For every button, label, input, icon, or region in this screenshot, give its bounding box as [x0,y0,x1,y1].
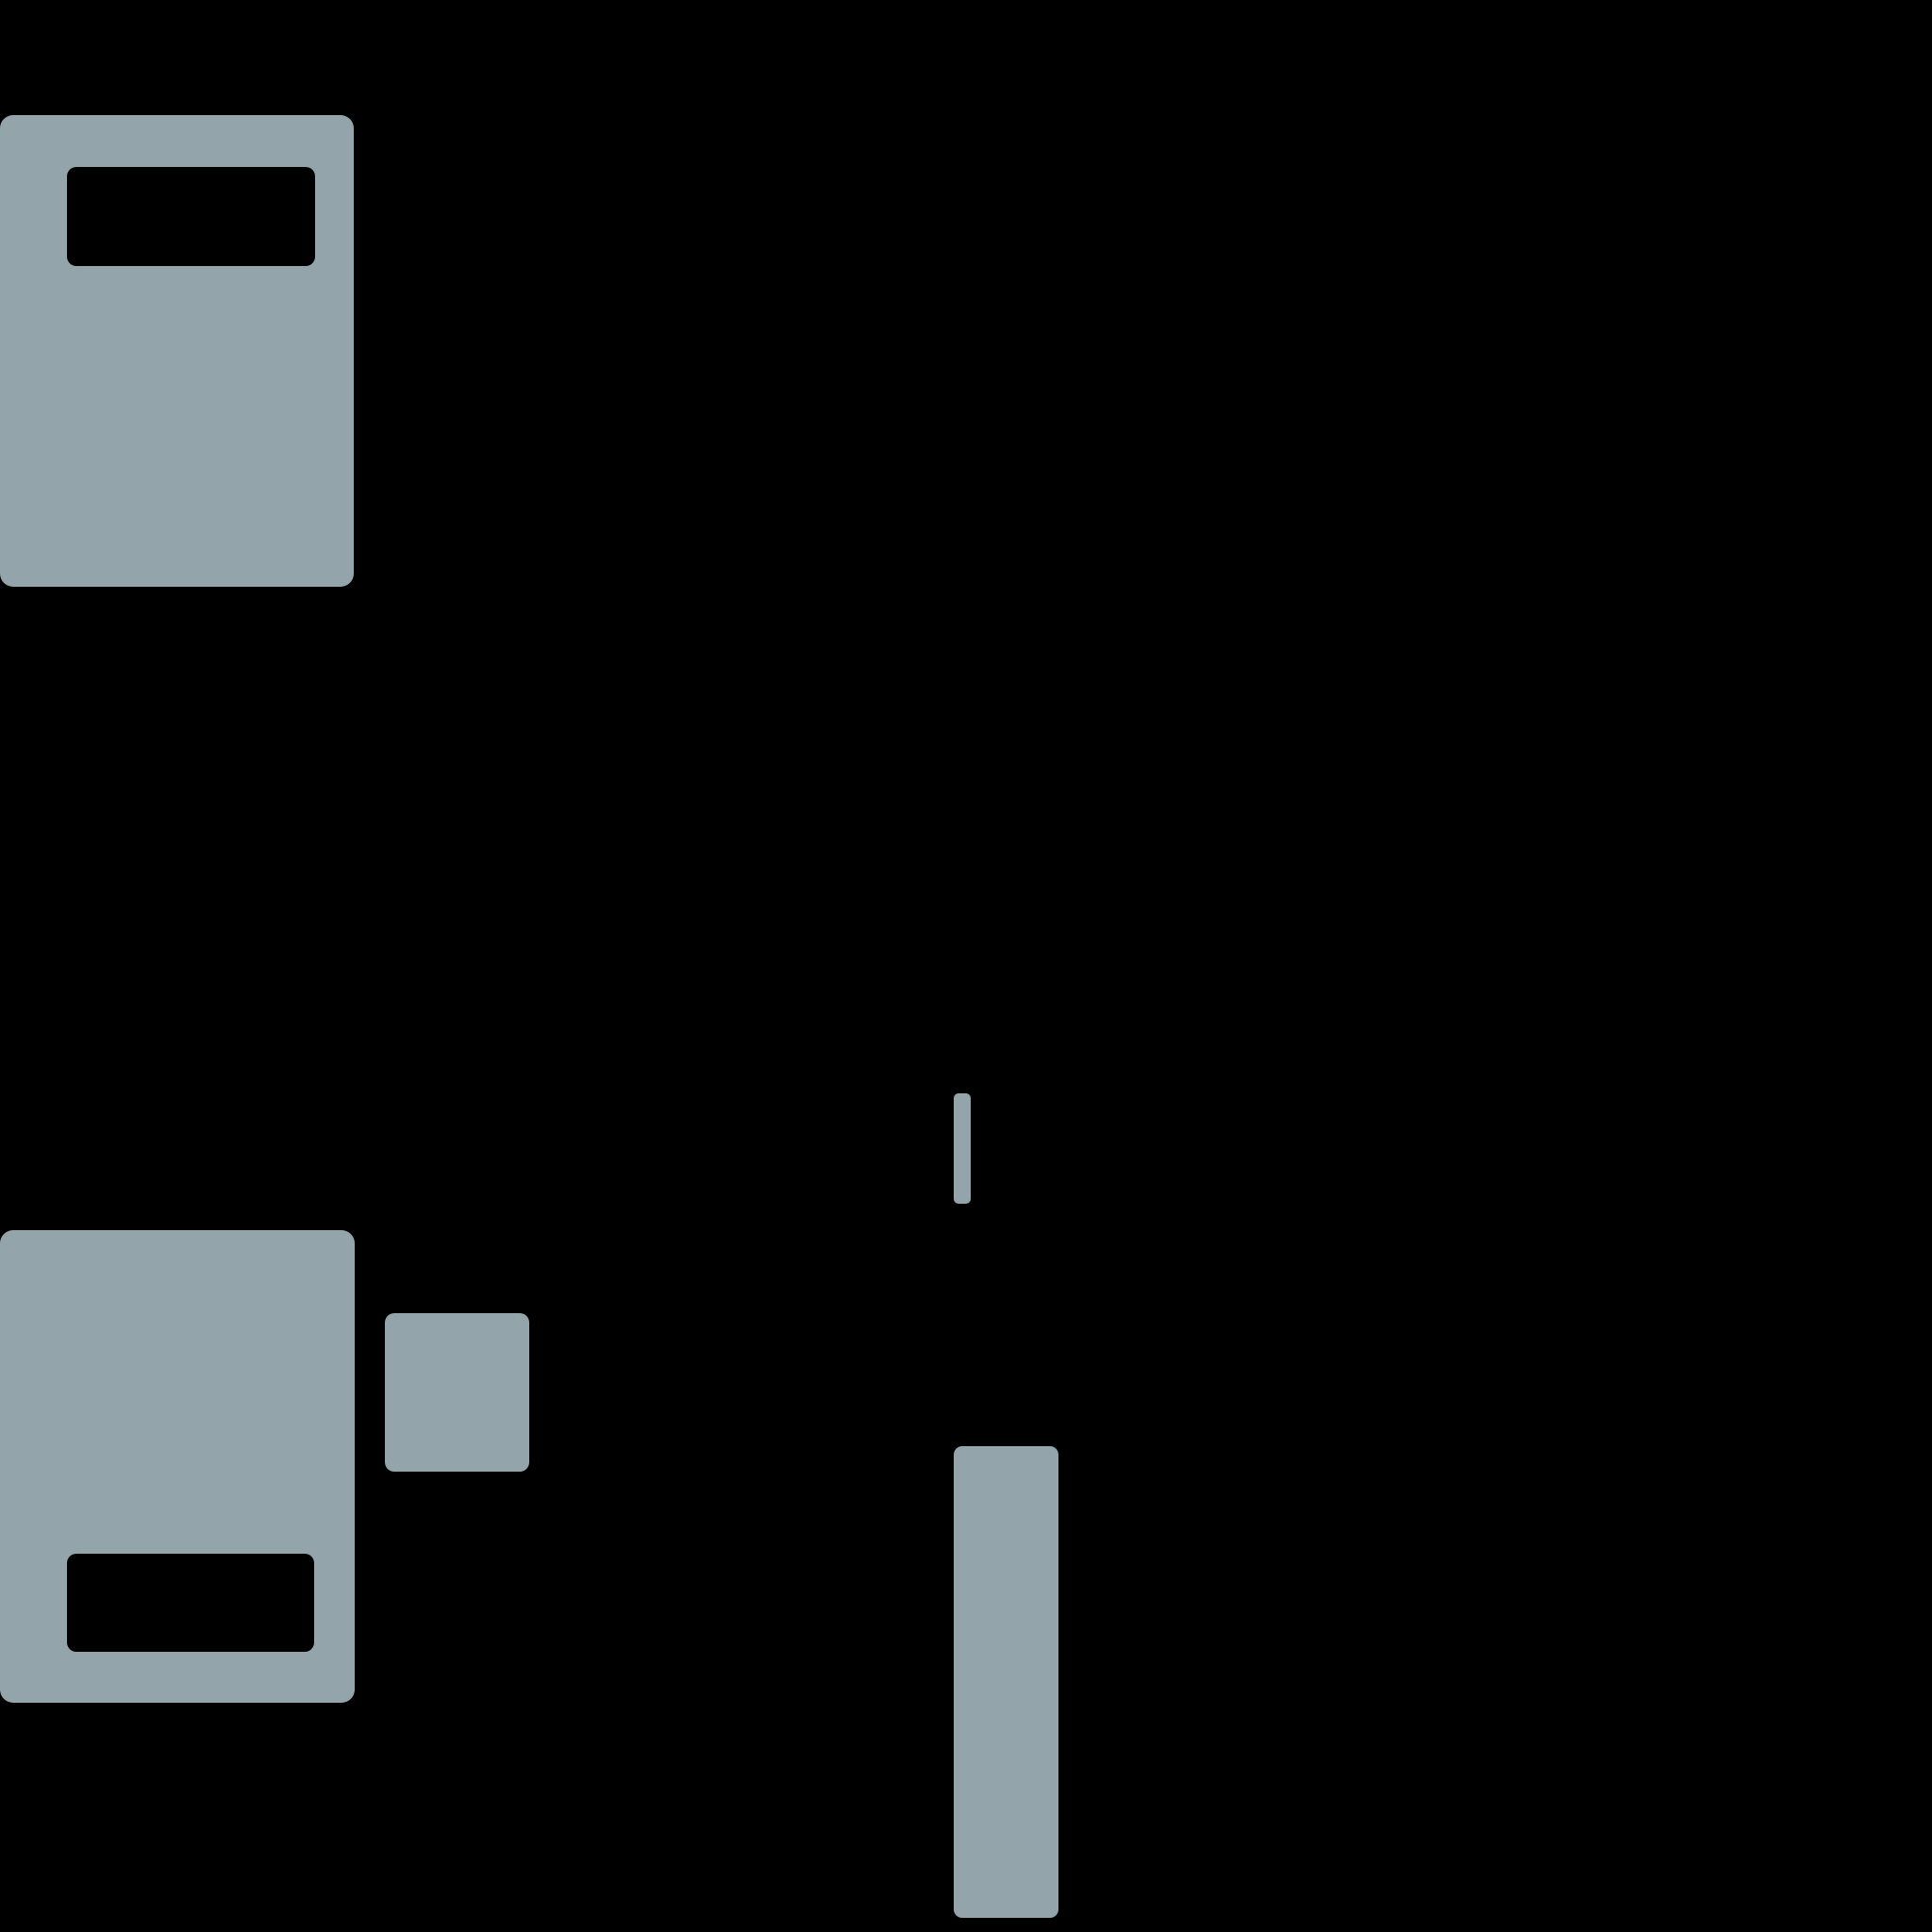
panel-bottom-left-cutout [67,1554,314,1652]
panel-top-left-cutout [67,167,315,266]
tall-vertical-bar[interactable] [954,1446,1058,1918]
thin-vertical-bar[interactable] [954,1093,971,1204]
dark-canvas [0,0,1932,1932]
shapes-layer [0,0,1932,1932]
small-block[interactable] [385,1313,529,1472]
